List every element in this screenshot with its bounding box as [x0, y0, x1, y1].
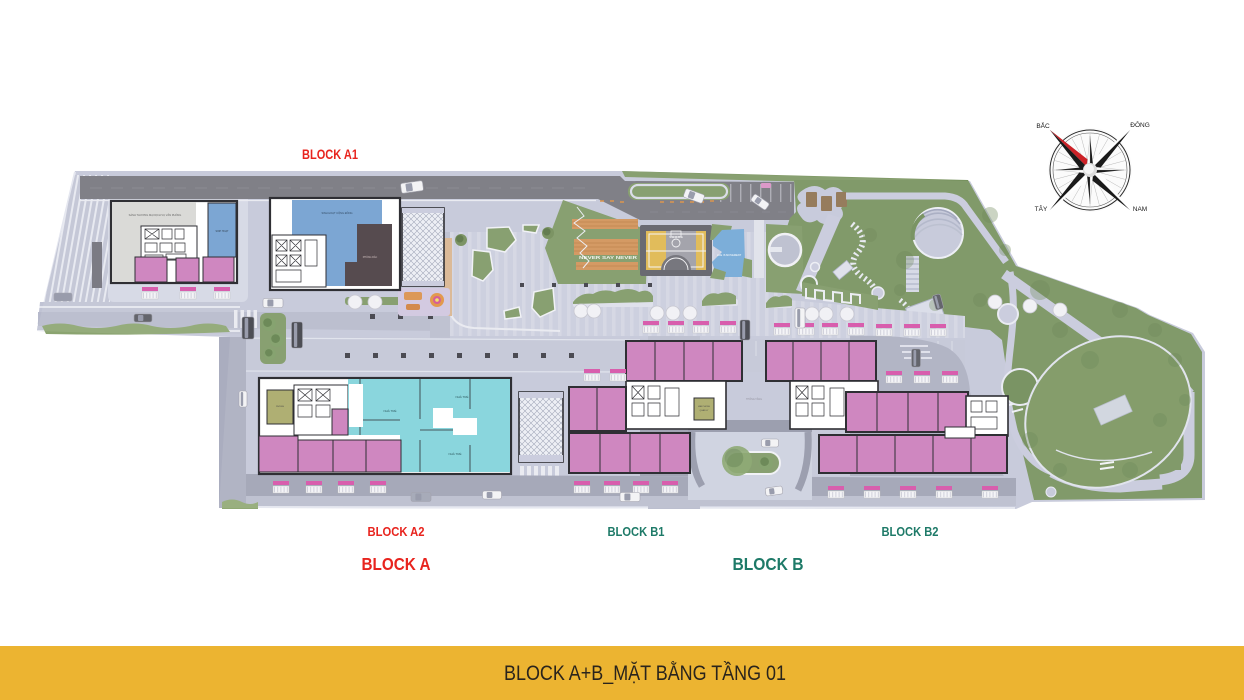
svg-text:TÂY: TÂY: [1035, 204, 1048, 213]
svg-text:BLOCK A: BLOCK A: [362, 554, 431, 574]
svg-text:BẮC: BẮC: [1036, 121, 1050, 130]
svg-text:NAM: NAM: [1133, 206, 1147, 213]
svg-text:BLOCK B2: BLOCK B2: [882, 525, 939, 539]
svg-text:ĐÔNG: ĐÔNG: [1130, 120, 1150, 129]
svg-text:BLOCK A1: BLOCK A1: [302, 146, 358, 162]
svg-text:BLOCK A+B_MẶT BẰNG TẦNG 01: BLOCK A+B_MẶT BẰNG TẦNG 01: [504, 661, 786, 685]
svg-text:BLOCK B1: BLOCK B1: [608, 525, 665, 539]
svg-text:BLOCK A2: BLOCK A2: [368, 525, 425, 539]
svg-text:BLOCK B: BLOCK B: [733, 554, 804, 574]
